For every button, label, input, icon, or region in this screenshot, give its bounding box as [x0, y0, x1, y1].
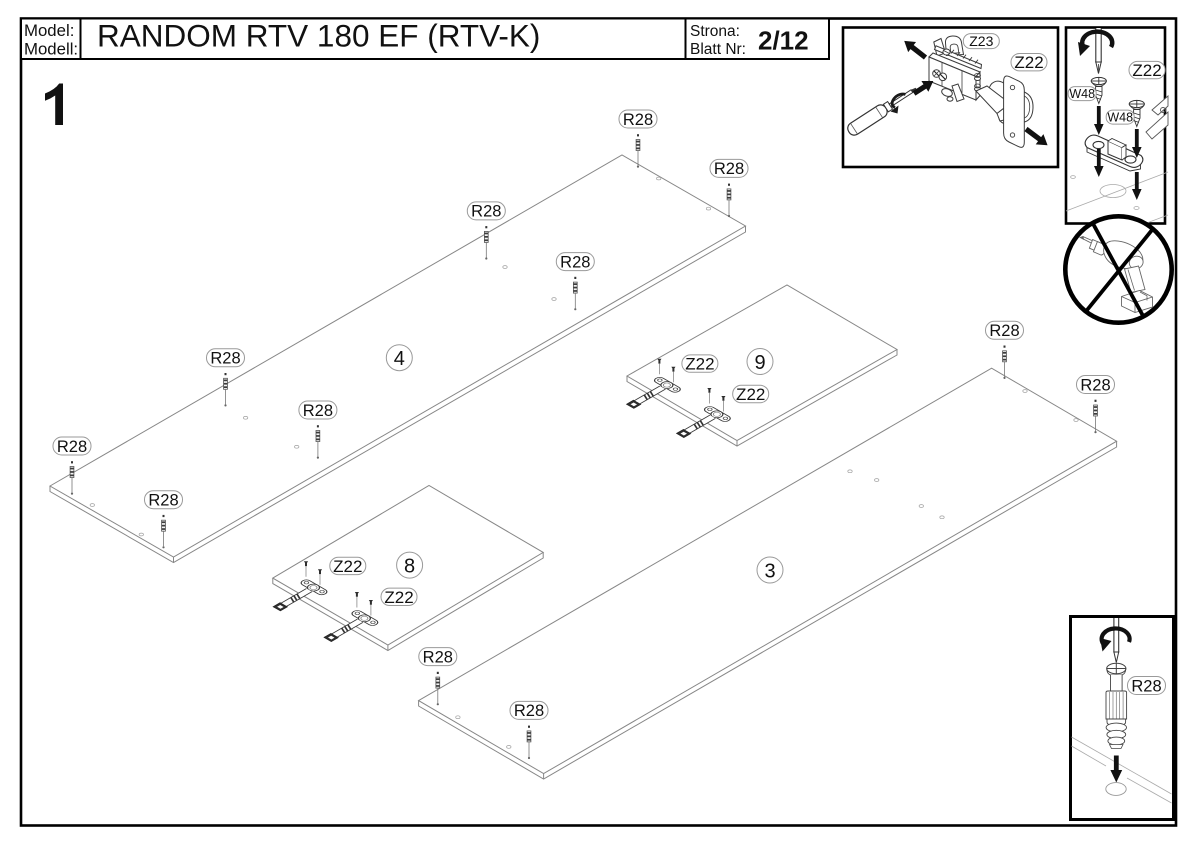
svg-text:Strona:: Strona: — [690, 23, 740, 40]
svg-text:Model:: Model: — [24, 21, 74, 40]
svg-text:3: 3 — [764, 560, 775, 582]
svg-text:Modell:: Modell: — [24, 40, 78, 59]
svg-text:W48: W48 — [1069, 87, 1095, 101]
svg-text:4: 4 — [394, 348, 405, 370]
svg-text:9: 9 — [754, 352, 765, 374]
svg-text:2/12: 2/12 — [758, 26, 809, 56]
svg-text:W48: W48 — [1107, 111, 1133, 125]
svg-text:8: 8 — [404, 555, 415, 577]
svg-text:RANDOM RTV 180 EF (RTV-K): RANDOM RTV 180 EF (RTV-K) — [97, 18, 540, 54]
svg-text:Z23: Z23 — [969, 33, 993, 49]
svg-text:Blatt Nr:: Blatt Nr: — [690, 41, 746, 58]
